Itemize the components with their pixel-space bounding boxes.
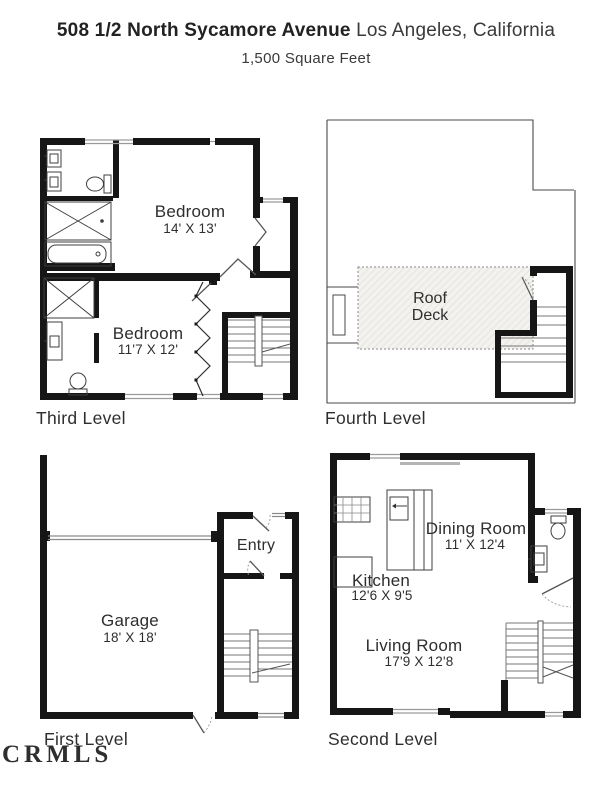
fourth-level-floorplan (315, 110, 610, 408)
living-room-dims: 17'9 X 12'8 (385, 654, 454, 669)
bedroom2-label: Bedroom (113, 324, 183, 344)
garage-dims: 18' X 18' (103, 630, 157, 645)
vanity-sink-icon (528, 546, 547, 572)
third-level-fixtures (44, 150, 111, 395)
square-feet-text: 1,500 Square Feet (0, 50, 612, 67)
garage-side-door-leaf (193, 715, 204, 733)
staircase (224, 630, 292, 682)
cooktop-icon (334, 497, 370, 522)
floorplan-page: 508 1/2 North Sycamore Avenue Los Angele… (0, 0, 612, 792)
first-level-floorplan (30, 448, 310, 740)
bathtub-icon (45, 242, 111, 266)
city-text: Los Angeles, California (356, 20, 555, 41)
bedroom1-dims: 14' X 13' (163, 221, 217, 236)
second-level-label: Second Level (328, 729, 438, 750)
staircase (228, 316, 290, 366)
toilet-icon (69, 373, 87, 395)
first-level-walls (40, 455, 299, 719)
accordion-closet-doors (195, 282, 211, 396)
toilet-icon (551, 516, 566, 539)
soffit-line (400, 462, 460, 465)
closet-icon (44, 278, 94, 318)
entry-label: Entry (237, 537, 275, 555)
third-level-label: Third Level (36, 408, 126, 429)
entry-door-leaf (253, 516, 269, 531)
living-room-label: Living Room (366, 636, 463, 656)
vanity-sink-icon (44, 322, 62, 360)
address-text: 508 1/2 North Sycamore Avenue (57, 20, 351, 41)
roof-deck-label-line1: Roof (413, 290, 447, 308)
page-title: 508 1/2 North Sycamore Avenue Los Angele… (0, 20, 612, 42)
roof-outline (327, 120, 575, 403)
dining-room-dims: 11' X 12'4 (445, 537, 505, 552)
kitchen-dims: 12'6 X 9'5 (351, 588, 412, 603)
third-level-floorplan (30, 110, 310, 405)
staircase (506, 621, 573, 683)
balcony-door-zigzag (255, 218, 266, 246)
powder-room-door (542, 578, 573, 607)
shower-icon (45, 202, 111, 240)
bedroom2-dims: 11'7 X 12' (118, 342, 178, 357)
fourth-level-label: Fourth Level (325, 408, 426, 429)
roof-deck-label-line2: Deck (412, 307, 448, 325)
dining-room-label: Dining Room (426, 519, 526, 539)
crmls-watermark: CRMLS (2, 741, 112, 769)
garage-label: Garage (101, 611, 159, 631)
planter-box (333, 295, 345, 335)
bedroom1-label: Bedroom (155, 202, 225, 222)
toilet-icon (87, 175, 112, 193)
